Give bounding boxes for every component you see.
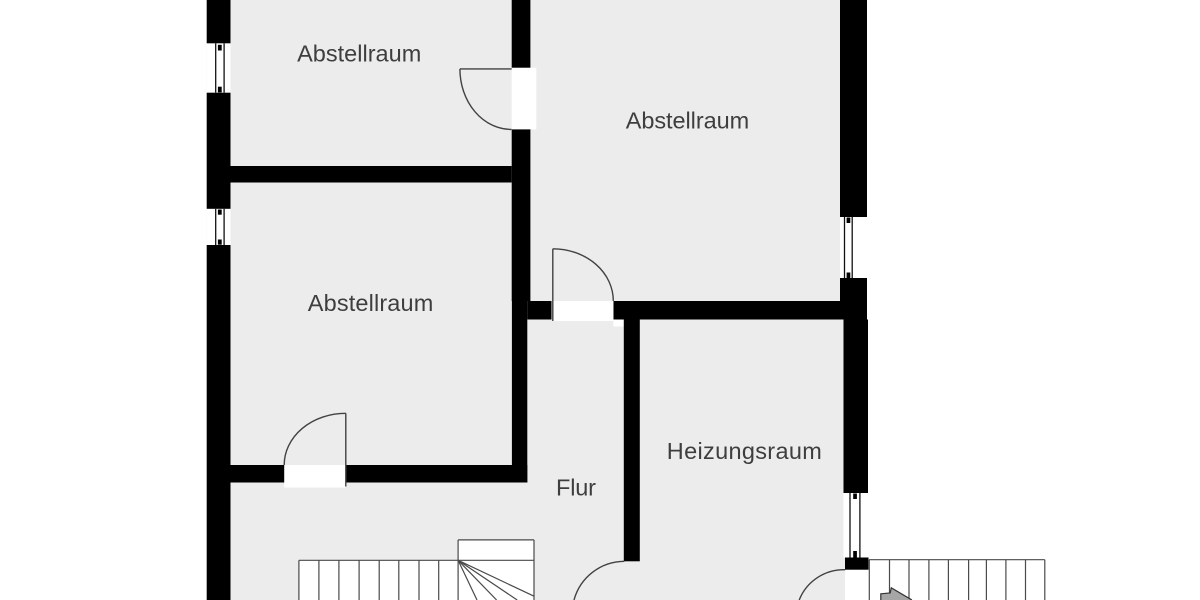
svg-text:Abstellraum: Abstellraum bbox=[297, 40, 421, 66]
svg-text:Abstellraum: Abstellraum bbox=[626, 108, 750, 134]
svg-text:Abstellraum: Abstellraum bbox=[308, 290, 434, 316]
svg-text:Heizungsraum: Heizungsraum bbox=[667, 438, 822, 464]
svg-text:Flur: Flur bbox=[556, 475, 596, 501]
